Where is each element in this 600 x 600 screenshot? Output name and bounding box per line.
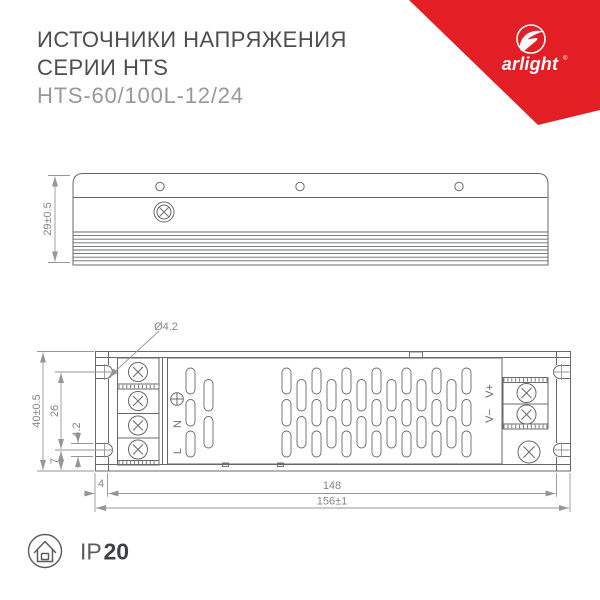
output-label-vminus: V−: [484, 409, 496, 423]
terminal-screw-icon: [129, 363, 148, 382]
dim-hole-dia: Ø4.2: [154, 321, 178, 333]
terminal-screw-icon: [517, 384, 536, 403]
dim-total-length: 156±1: [317, 496, 348, 508]
dim-top-height: 29±0.5: [42, 202, 54, 236]
ventilation-slots: [186, 368, 471, 457]
mount-hole: [296, 182, 304, 190]
top-view-outline: [73, 174, 548, 266]
model-number: HTS-60/100L-12/24: [37, 83, 244, 108]
datasheet-canvas: arlight ® ИСТОЧНИКИ НАПРЯЖЕНИЯ СЕРИИ HTS…: [0, 0, 600, 600]
datasheet-page: arlight ® ИСТОЧНИКИ НАПРЯЖЕНИЯ СЕРИИ HTS…: [0, 0, 600, 600]
dim-height: 40±0.5: [31, 394, 43, 428]
ip-rating-prefix: IP: [80, 539, 102, 565]
output-terminal-block: [503, 378, 548, 430]
title-line-1: ИСТОЧНИКИ НАПРЯЖЕНИЯ: [37, 27, 347, 52]
registered-mark: ®: [563, 55, 568, 62]
top-view-dimensions: 29±0.5: [42, 176, 70, 263]
terminal-screw-icon: [129, 440, 148, 459]
mount-hole: [156, 182, 164, 190]
dim-slot-span: 26: [49, 405, 61, 417]
page-title: ИСТОЧНИКИ НАПРЯЖЕНИЯ СЕРИИ HTS HTS-60/10…: [37, 27, 347, 108]
case-screw-icon: [518, 441, 540, 463]
front-view-outline: [96, 352, 571, 472]
title-line-2: СЕРИИ HTS: [37, 55, 168, 80]
case-screw-icon: [154, 202, 174, 222]
input-label-n: N: [172, 420, 184, 428]
ip20-badge: IP 20: [29, 535, 130, 568]
dim-body-length: 148: [323, 480, 341, 492]
dim-edge-offset: 7: [49, 458, 61, 464]
brand-banner: arlight ®: [409, 0, 600, 125]
top-view-drawing: [73, 174, 548, 266]
brand-wordmark: arlight: [502, 54, 559, 74]
house-icon: [35, 542, 56, 562]
cooling-fins: [73, 232, 548, 261]
terminal-screw-icon: [517, 405, 536, 424]
input-terminal-block: [118, 358, 160, 465]
ground-screw-icon: [171, 393, 184, 406]
terminal-screw-icon: [129, 416, 148, 435]
output-label-vplus: V+: [484, 384, 496, 398]
dim-slot-width: 4.2: [71, 422, 83, 437]
input-label-l: L: [172, 448, 184, 454]
dim-flange: 4: [98, 478, 104, 490]
front-view-drawing: [96, 352, 571, 472]
terminal-screw-icon: [129, 392, 148, 411]
mount-hole: [455, 182, 463, 190]
ip-rating-value: 20: [104, 539, 130, 565]
